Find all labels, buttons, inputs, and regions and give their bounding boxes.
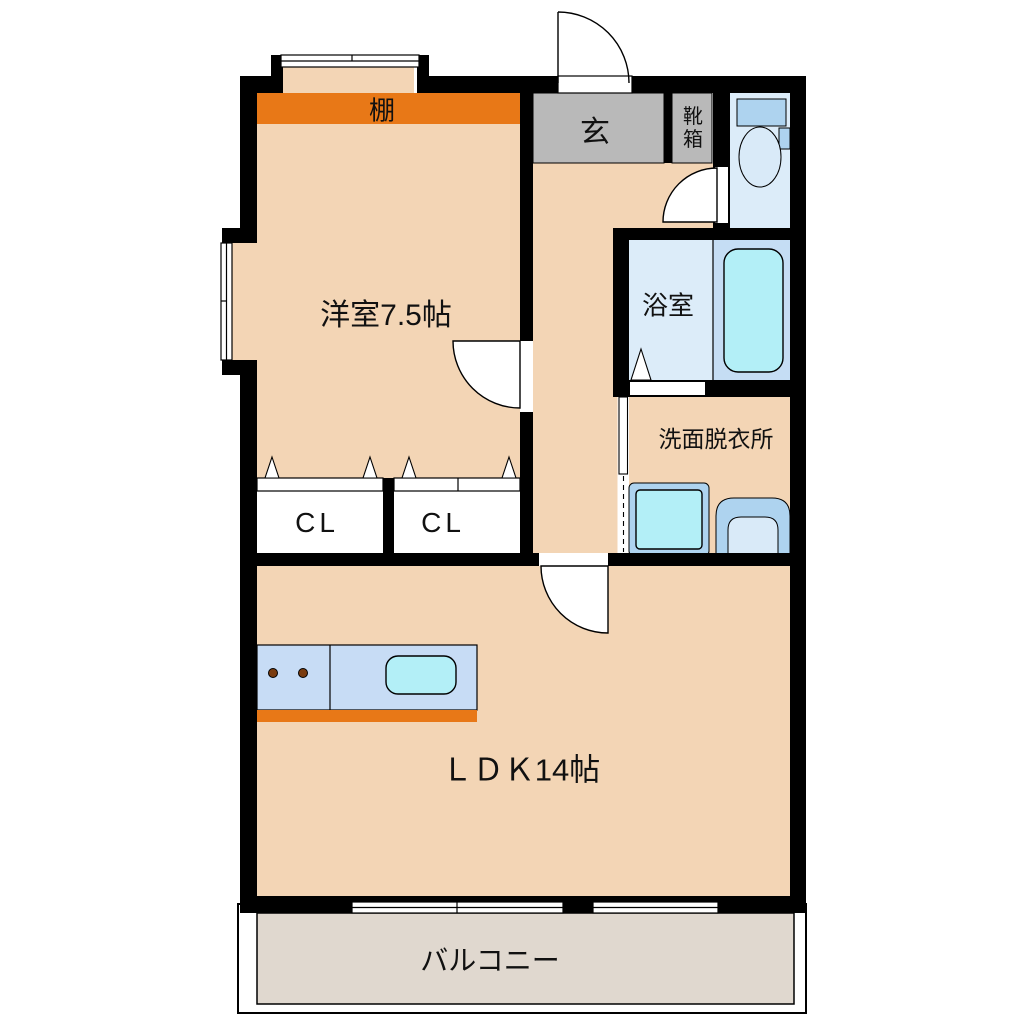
hallway-floor — [533, 163, 618, 553]
wall-bottom-left — [240, 896, 352, 913]
washroom-sliding-door-panel — [619, 397, 628, 474]
wall-western-east-lower — [520, 412, 533, 566]
bath-door-opening — [630, 382, 705, 395]
wall-ldk-north — [240, 553, 806, 566]
left-bay-stub-bottom — [222, 360, 257, 375]
wall-top-right — [632, 76, 806, 93]
front-door-opening — [558, 76, 632, 93]
wall-left-lower — [240, 372, 257, 913]
ldk-floor — [257, 566, 790, 898]
stove-burner-1 — [269, 669, 278, 678]
entrance-label: 玄 — [580, 107, 610, 151]
western-room-label: 洋室7.5帖 — [320, 290, 452, 334]
floor-plan: 棚 玄 靴箱 洋室7.5帖 浴室 洗面脱衣所 CL CL ＬＤＫ14帖 バルコニ… — [0, 0, 1020, 1020]
front-door-swing-arc — [558, 12, 629, 83]
wall-entrance-shoebox — [664, 93, 672, 163]
wall-left-upper — [240, 76, 257, 233]
toilet-flush-panel — [779, 128, 790, 149]
western-door-opening — [520, 341, 533, 412]
washroom-label: 洗面脱衣所 — [659, 420, 774, 454]
wall-top-mid — [417, 76, 558, 93]
left-bay-stub-top — [222, 228, 257, 243]
toilet-bowl — [739, 127, 781, 187]
wall-western-east-upper — [520, 93, 533, 341]
ldk-door-opening — [539, 553, 608, 566]
balcony-label: バルコニー — [420, 939, 559, 979]
kitchen-sink — [386, 656, 456, 694]
wall-bottom-lintel-2 — [593, 896, 718, 902]
bathroom-label: 浴室 — [642, 286, 694, 323]
wall-bath-north — [613, 228, 806, 240]
wall-closet-divider — [383, 478, 394, 553]
wall-bottom-lintel-1 — [352, 896, 563, 902]
western-room-top-bay — [283, 64, 414, 94]
shelf-label: 棚 — [369, 91, 395, 128]
washer-pan-inner — [636, 490, 702, 549]
closet-right-doors — [394, 478, 520, 491]
bathtub — [724, 249, 783, 372]
wall-bottom-mid — [563, 896, 593, 913]
wall-bottom-right — [718, 896, 806, 913]
ldk-label: ＬＤＫ14帖 — [442, 745, 600, 790]
western-room-floor — [257, 93, 520, 478]
western-room-left-bay — [232, 243, 257, 360]
shoebox-label: 靴箱 — [682, 106, 704, 152]
closet-left-label: CL — [295, 507, 339, 539]
closet-right-label: CL — [421, 507, 465, 539]
floor-plan-drawing — [0, 0, 1020, 1020]
closet-left-doors — [257, 478, 383, 491]
toilet-tank — [737, 99, 786, 126]
wall-bath-west — [613, 240, 629, 397]
wall-right — [790, 76, 806, 913]
vanity-basin — [728, 517, 778, 556]
stove-burner-2 — [299, 669, 308, 678]
kitchen-front-strip — [257, 710, 477, 722]
